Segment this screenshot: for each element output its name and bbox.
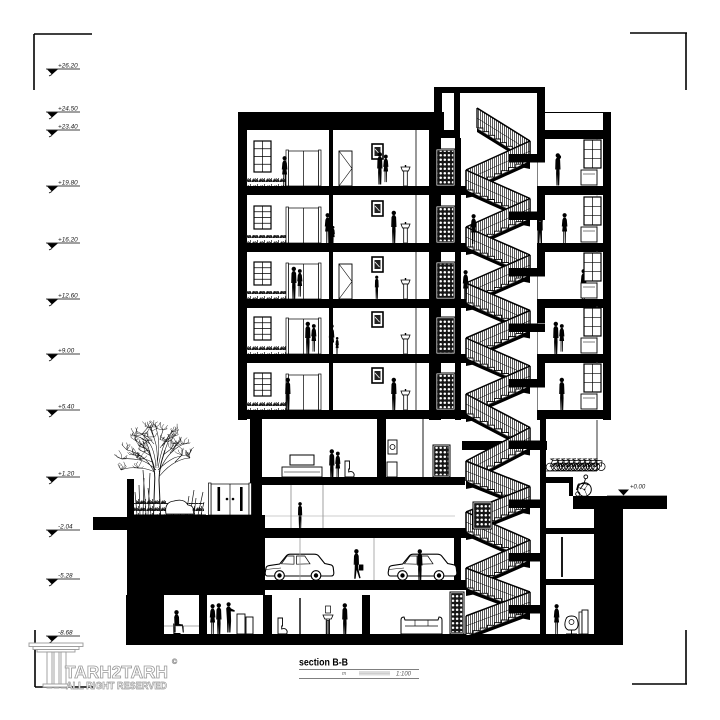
svg-text:+24.50: +24.50 — [58, 106, 78, 113]
svg-text:-2.04: -2.04 — [58, 524, 73, 531]
svg-text:-8.68: -8.68 — [58, 630, 73, 637]
svg-text:+0.00: +0.00 — [630, 485, 646, 491]
svg-text:+12.60: +12.60 — [58, 293, 78, 300]
svg-text:+19.80: +19.80 — [58, 180, 78, 187]
svg-text:-5.28: -5.28 — [58, 573, 73, 580]
svg-text:+1.20: +1.20 — [58, 471, 75, 478]
svg-text:TARH2TARH: TARH2TARH — [65, 662, 168, 682]
svg-text:1:100: 1:100 — [396, 672, 412, 678]
svg-text:+26.20: +26.20 — [58, 63, 78, 70]
svg-text:+5.40: +5.40 — [58, 404, 75, 411]
svg-text:+9.00: +9.00 — [58, 348, 75, 355]
svg-text:ALL RIGHT RESERVED: ALL RIGHT RESERVED — [66, 680, 167, 692]
svg-text:section B-B: section B-B — [299, 658, 348, 669]
svg-text:m: m — [342, 671, 346, 677]
svg-text:+16.20: +16.20 — [58, 237, 78, 244]
svg-text:©: © — [172, 658, 178, 666]
svg-text:+23.40: +23.40 — [58, 124, 78, 131]
